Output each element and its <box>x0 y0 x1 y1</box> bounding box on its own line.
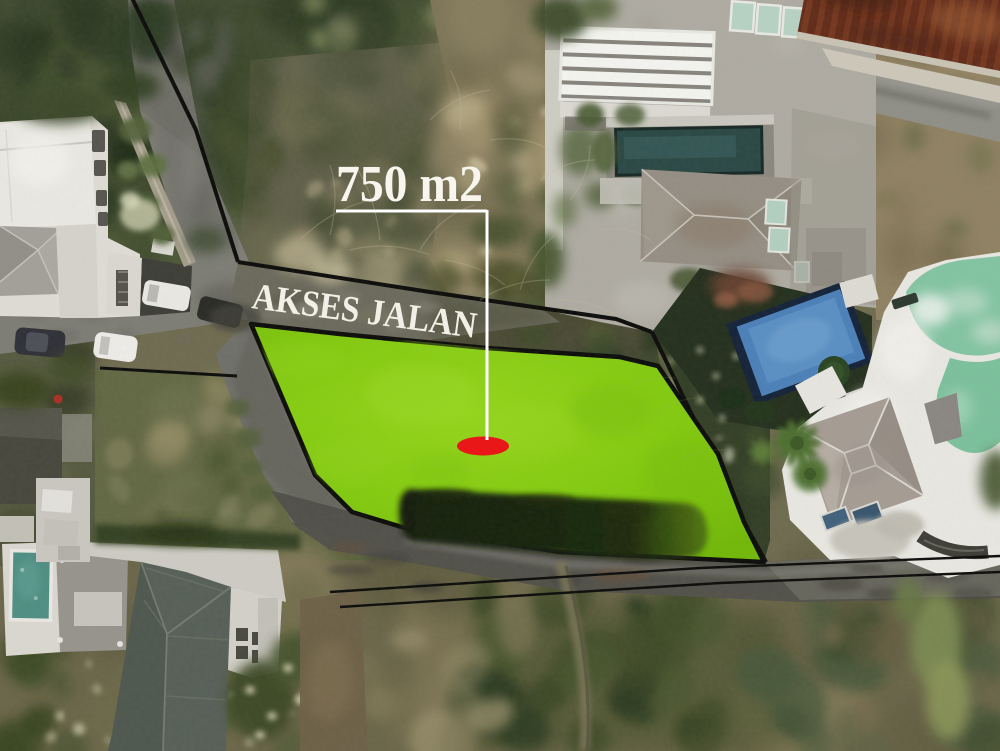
svg-text:750 m2: 750 m2 <box>336 156 483 213</box>
